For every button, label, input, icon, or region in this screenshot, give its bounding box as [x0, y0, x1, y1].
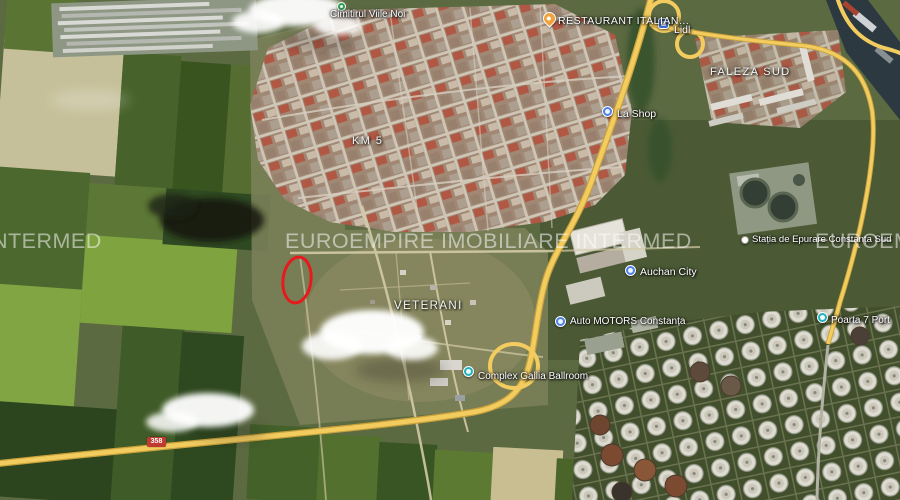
- road-number-badge: 358: [147, 437, 166, 447]
- label-faleza-sud: FALEZA SUD: [710, 66, 791, 78]
- label-motors[interactable]: Auto MOTORS Constanța: [570, 316, 685, 327]
- label-auchan[interactable]: Auchan City: [640, 266, 697, 278]
- watermark-center: EUROEMPIRE IMOBILIARE INTERMED: [285, 229, 692, 254]
- label-km5: KM 5: [352, 135, 383, 147]
- watermark-left: NTERMED: [0, 229, 102, 254]
- gallia-poi-icon[interactable]: [463, 366, 474, 377]
- poarta7-poi-icon[interactable]: [817, 312, 828, 323]
- auchan-poi-icon[interactable]: [625, 265, 636, 276]
- label-poarta7[interactable]: Poarta 7 Port: [831, 315, 890, 326]
- epurare-poi-icon[interactable]: [741, 236, 749, 244]
- label-cemetery[interactable]: Cimitirul Viile Noi: [330, 9, 405, 20]
- label-veterani: VETERANI: [394, 300, 463, 312]
- motors-poi-icon[interactable]: [555, 316, 566, 327]
- map-canvas[interactable]: Cimitirul Viile Noi RESTAURANT ITALIAN..…: [0, 0, 900, 500]
- label-shop[interactable]: La Shop: [617, 108, 656, 120]
- label-restaurant[interactable]: RESTAURANT ITALIAN...: [558, 15, 689, 27]
- shop-poi-icon[interactable]: [602, 106, 613, 117]
- watermark-right: EUROEMP: [815, 229, 900, 254]
- label-lidl[interactable]: Lidl: [674, 24, 690, 36]
- label-gallia[interactable]: Complex Gallia Ballroom: [478, 371, 588, 382]
